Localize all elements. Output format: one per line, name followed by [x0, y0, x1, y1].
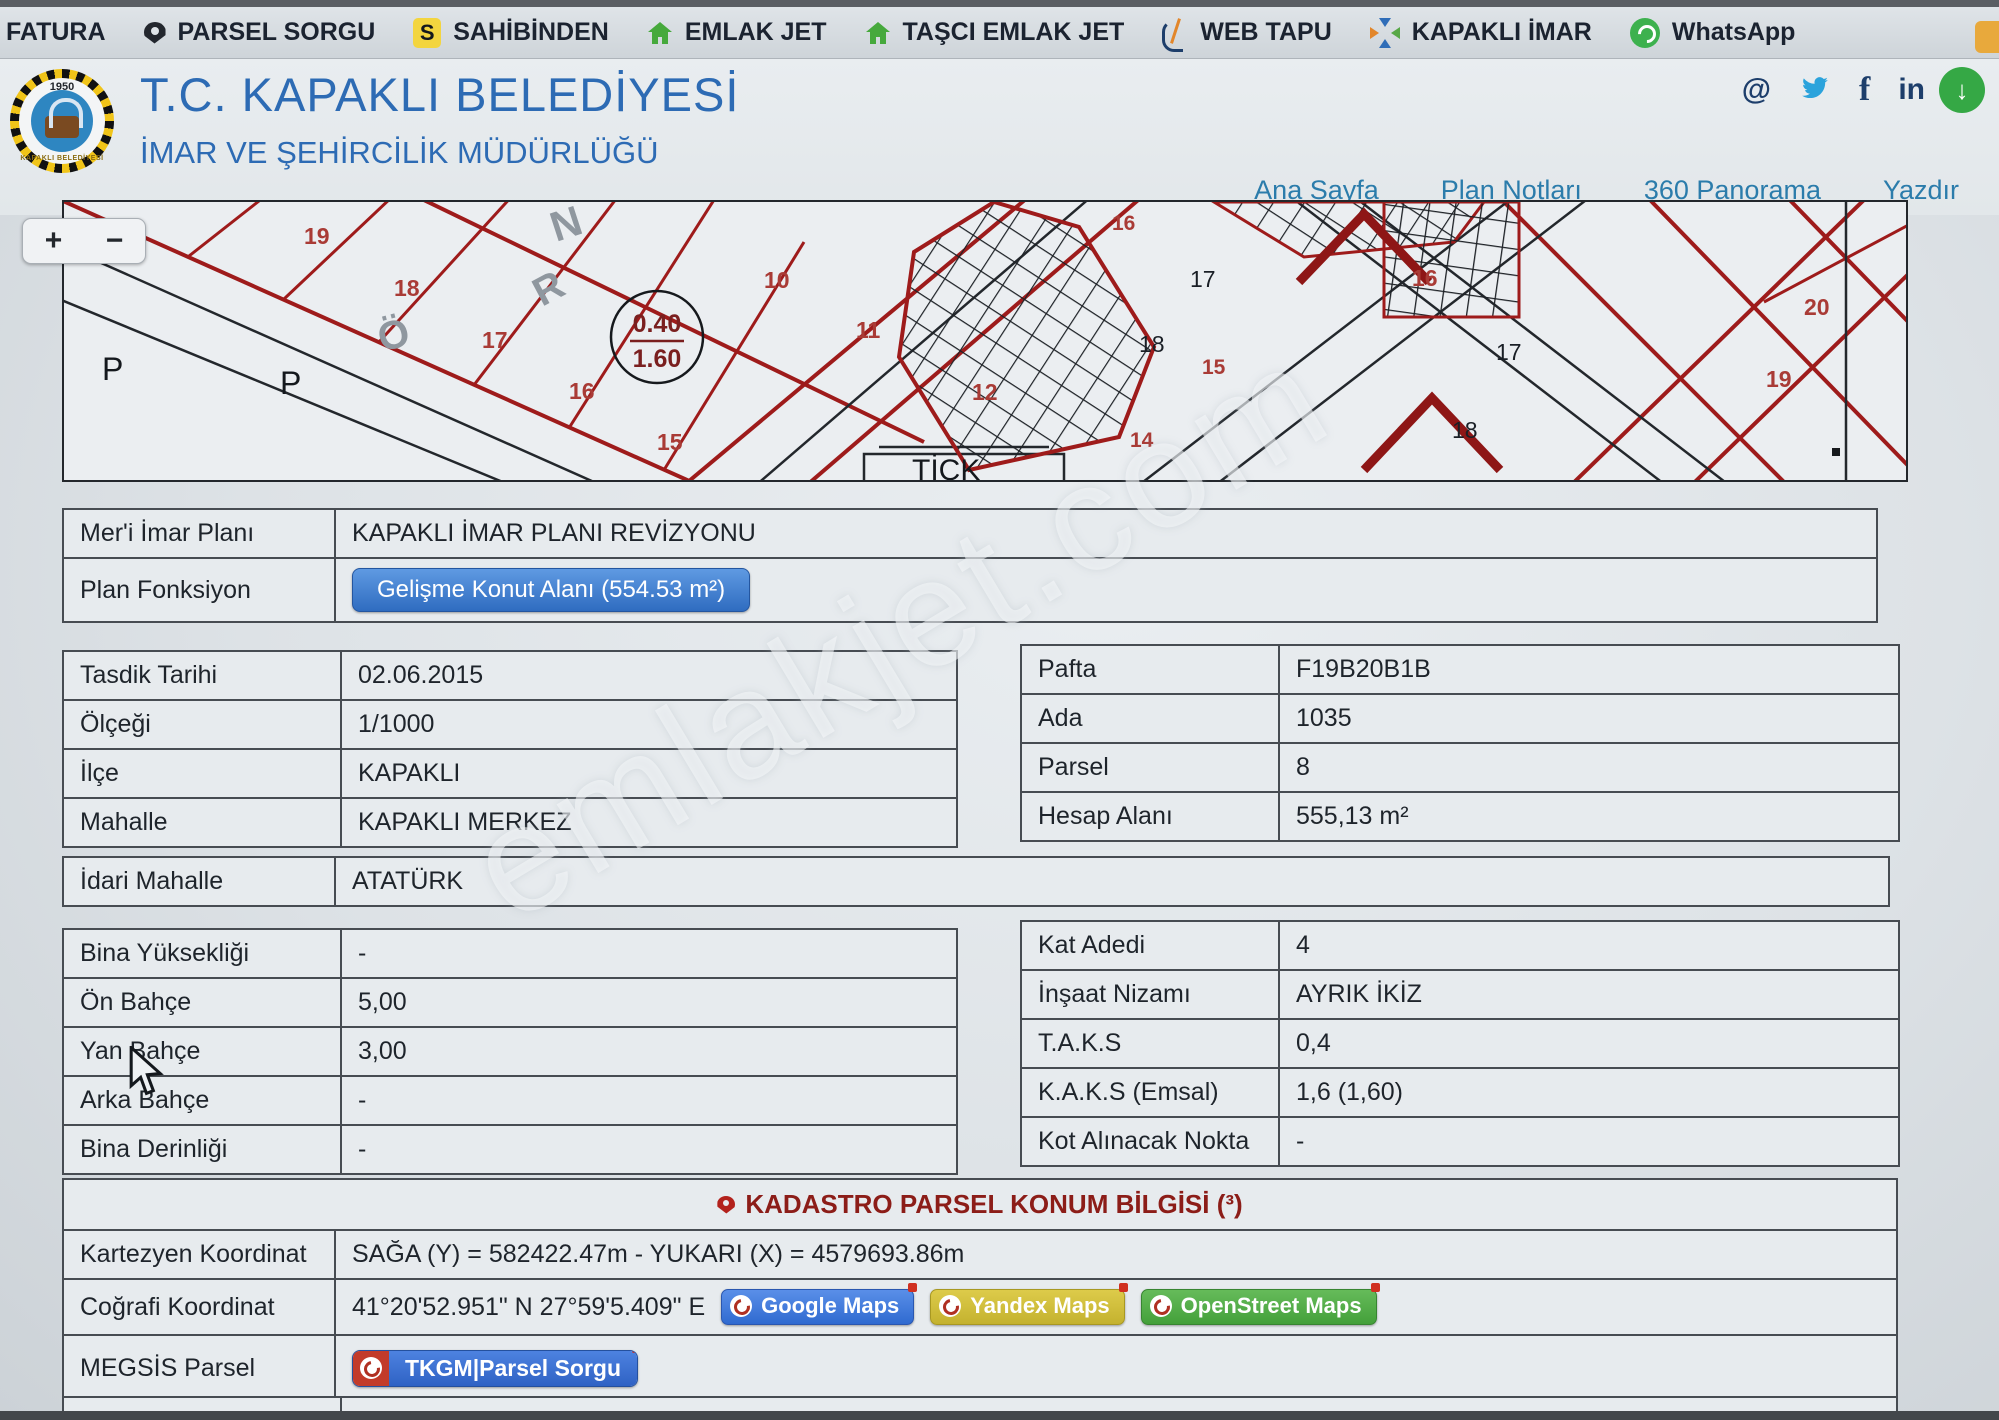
- cadastral-map[interactable]: N 19 18 17 16 15 Ö R P P 0.40 1.60 10 11…: [62, 200, 1908, 482]
- map-parcel-label: 10: [764, 267, 790, 293]
- field-value: AYRIK İKİZ: [1280, 971, 1898, 1018]
- tkgm-icon: [353, 1351, 389, 1386]
- map-ratio-label: 0.40: [633, 310, 682, 338]
- logo-town-text: KAPAKLI BELEDİYESİ: [19, 155, 105, 162]
- field-label: İlçe: [64, 750, 342, 797]
- plan-table: Mer'i İmar Planı KAPAKLI İMAR PLANI REVİ…: [62, 508, 1878, 623]
- setback-table: Bina Yüksekliği - Ön Bahçe 5,00 Yan Bahç…: [62, 928, 958, 1175]
- field-value: 3,00: [342, 1028, 956, 1075]
- field-value: 8: [1280, 744, 1898, 791]
- maps-button-icon: [939, 1295, 961, 1317]
- kadastro-header-row: KADASTRO PARSEL KONUM BİLGİSİ (³): [64, 1180, 1896, 1231]
- field-value: TKGM|Parsel Sorgu: [336, 1336, 1896, 1400]
- tkgm-parsel-sorgu-button[interactable]: TKGM|Parsel Sorgu: [352, 1350, 638, 1387]
- location-pin-icon: [717, 1196, 735, 1214]
- field-label: Hesap Alanı: [1022, 793, 1280, 840]
- field-label: Ada: [1022, 695, 1280, 742]
- table-row: Arka Bahçe -: [64, 1077, 956, 1126]
- button-label: TKGM|Parsel Sorgu: [389, 1351, 637, 1386]
- table-row: Coğrafi Koordinat 41°20'52.951" N 27°59'…: [64, 1280, 1896, 1336]
- table-row: Mer'i İmar Planı KAPAKLI İMAR PLANI REVİ…: [64, 510, 1876, 559]
- field-label: Kot Alınacak Nokta: [1022, 1118, 1280, 1165]
- field-label: Kartezyen Koordinat: [64, 1231, 336, 1278]
- twitter-icon[interactable]: [1799, 74, 1831, 107]
- field-value: 4: [1280, 922, 1898, 969]
- badge-dot: [632, 1350, 638, 1353]
- map-parcel-label: 19: [1766, 366, 1792, 392]
- field-value: 555,13 m²: [1280, 793, 1898, 840]
- table-row: Mahalle KAPAKLI MERKEZ: [64, 799, 956, 846]
- field-label: Mahalle: [64, 799, 342, 846]
- maps-button-icon: [730, 1295, 752, 1317]
- sahibinden-icon: S: [413, 18, 441, 48]
- field-label: Pafta: [1022, 646, 1280, 693]
- field-label: Bina Derinliği: [64, 1126, 342, 1173]
- openstreet-maps-button[interactable]: OpenStreet Maps: [1141, 1289, 1377, 1325]
- field-label: Mer'i İmar Planı: [64, 510, 336, 557]
- parcel-id-table: Pafta F19B20B1B Ada 1035 Parsel 8 Hesap …: [1020, 644, 1900, 842]
- google-maps-button[interactable]: Google Maps: [721, 1289, 914, 1325]
- plan-fonksiyon-button[interactable]: Gelişme Konut Alanı (554.53 m²): [352, 568, 750, 612]
- bookmark-sahibinden[interactable]: S SAHİBİNDEN: [413, 18, 609, 48]
- field-label: Ön Bahçe: [64, 979, 342, 1026]
- kadastro-table: KADASTRO PARSEL KONUM BİLGİSİ (³) Kartez…: [62, 1178, 1898, 1402]
- map-letter-label: Ö: [373, 309, 415, 361]
- field-value: SAĞA (Y) = 582422.47m - YUKARI (X) = 457…: [336, 1231, 1896, 1278]
- map-tick-label: TİCK: [912, 454, 980, 482]
- social-links: @ f in: [1742, 73, 1925, 107]
- bookmark-kapakli-imar[interactable]: KAPAKLI İMAR: [1370, 18, 1592, 48]
- screen-top-edge: [0, 0, 1999, 7]
- field-label: Yan Bahçe: [64, 1028, 342, 1075]
- linkedin-icon[interactable]: in: [1898, 75, 1925, 105]
- bookmark-label: WEB TAPU: [1200, 18, 1331, 47]
- field-value: 02.06.2015: [342, 652, 956, 699]
- section-title: KADASTRO PARSEL KONUM BİLGİSİ (³): [745, 1189, 1242, 1220]
- field-label: İnşaat Nizamı: [1022, 971, 1280, 1018]
- bookmark-label: TAŞCI EMLAK JET: [903, 18, 1125, 47]
- field-value: -: [342, 930, 956, 977]
- button-label: Yandex Maps: [970, 1293, 1109, 1319]
- table-row: Yan Bahçe 3,00: [64, 1028, 956, 1077]
- field-label: Arka Bahçe: [64, 1077, 342, 1124]
- kadastro-title-cell: KADASTRO PARSEL KONUM BİLGİSİ (³): [64, 1180, 1896, 1229]
- map-parcel-label: 19: [304, 223, 330, 249]
- house-icon: [647, 20, 673, 46]
- bookmark-parsel-sorgu[interactable]: PARSEL SORGU: [144, 18, 376, 47]
- map-parcel-label: 18: [1452, 417, 1478, 443]
- map-parcel-label: 18: [394, 275, 420, 301]
- yandex-maps-button[interactable]: Yandex Maps: [930, 1289, 1124, 1325]
- table-row: Ön Bahçe 5,00: [64, 979, 956, 1028]
- bookmark-label: FATURA: [6, 18, 106, 47]
- table-row: İlçe KAPAKLI: [64, 750, 956, 799]
- maps-button-icon: [1150, 1295, 1172, 1317]
- field-value: KAPAKLI İMAR PLANI REVİZYONU: [336, 510, 1876, 557]
- table-row: Tasdik Tarihi 02.06.2015: [64, 652, 956, 701]
- facebook-icon[interactable]: f: [1859, 73, 1870, 107]
- bookmark-partial-icon[interactable]: [1975, 21, 1999, 53]
- field-label: Plan Fonksiyon: [64, 559, 336, 621]
- field-label: Kat Adedi: [1022, 922, 1280, 969]
- field-value: 5,00: [342, 979, 956, 1026]
- bookmark-fatura[interactable]: FATURA: [6, 18, 106, 47]
- map-parcel-label: 15: [657, 429, 683, 455]
- bookmark-tasci-emlak-jet[interactable]: TAŞCI EMLAK JET: [865, 18, 1125, 47]
- map-parcel-label: 17: [1190, 266, 1216, 292]
- field-label: K.A.K.S (Emsal): [1022, 1069, 1280, 1116]
- button-label: OpenStreet Maps: [1181, 1293, 1362, 1319]
- badge-dot: [908, 1283, 917, 1292]
- map-north-label: N: [544, 202, 587, 251]
- municipality-logo: 1950 KAPAKLI BELEDİYESİ: [10, 69, 114, 173]
- field-value: KAPAKLI MERKEZ: [342, 799, 956, 846]
- map-parcel-label: 17: [1496, 339, 1522, 365]
- field-value: 0,4: [1280, 1020, 1898, 1067]
- table-row: Ada 1035: [1022, 695, 1898, 744]
- map-parcel-label: 18: [1139, 331, 1165, 357]
- map-parcel-label: 16: [1112, 212, 1135, 235]
- page: FATURA PARSEL SORGU S SAHİBİNDEN EMLAK J…: [0, 0, 1999, 1420]
- field-label: Parsel: [1022, 744, 1280, 791]
- house-icon: [865, 20, 891, 46]
- table-row: K.A.K.S (Emsal) 1,6 (1,60): [1022, 1069, 1898, 1118]
- field-label: T.A.K.S: [1022, 1020, 1280, 1067]
- plan-details-table: Tasdik Tarihi 02.06.2015 Ölçeği 1/1000 İ…: [62, 650, 958, 848]
- table-row: Kartezyen Koordinat SAĞA (Y) = 582422.47…: [64, 1231, 1896, 1280]
- table-row: İnşaat Nizamı AYRIK İKİZ: [1022, 971, 1898, 1020]
- field-value: ATATÜRK: [336, 858, 1888, 905]
- map-parcel-label: 12: [972, 379, 998, 405]
- field-value: F19B20B1B: [1280, 646, 1898, 693]
- field-value: Gelişme Konut Alanı (554.53 m²): [336, 559, 1876, 621]
- table-row: MEGSİS Parsel TKGM|Parsel Sorgu: [64, 1336, 1896, 1400]
- map-parcel-label: 16: [569, 378, 595, 404]
- field-value: -: [342, 1126, 956, 1173]
- site-header: 1950 KAPAKLI BELEDİYESİ T.C. KAPAKLI BEL…: [0, 59, 1999, 215]
- table-row: Ölçeği 1/1000: [64, 701, 956, 750]
- page-title: T.C. KAPAKLI BELEDİYESİ: [140, 67, 739, 122]
- zoom-out-button[interactable]: −: [84, 220, 145, 262]
- table-row: Pafta F19B20B1B: [1022, 646, 1898, 695]
- field-value: KAPAKLI: [342, 750, 956, 797]
- badge-dot: [1371, 1283, 1380, 1292]
- field-value: 1/1000: [342, 701, 956, 748]
- map-parcel-label: 20: [1804, 294, 1830, 320]
- field-label: Tasdik Tarihi: [64, 652, 342, 699]
- map-parcel-label: 11: [856, 317, 881, 343]
- map-pin-icon: [144, 22, 166, 44]
- bookmark-label: PARSEL SORGU: [178, 18, 376, 47]
- coordinates-text: 41°20'52.951" N 27°59'5.409" E: [352, 1293, 705, 1322]
- scroll-download-button[interactable]: ↓: [1939, 67, 1985, 113]
- bookmark-label: EMLAK JET: [685, 18, 827, 47]
- map-street-label: P: [280, 365, 301, 401]
- map-parcel-label: 17: [482, 327, 508, 353]
- table-row: Kot Alınacak Nokta -: [1022, 1118, 1898, 1165]
- page-subtitle: İMAR VE ŞEHİRCİLİK MÜDÜRLÜĞÜ: [140, 135, 658, 171]
- field-label: MEGSİS Parsel: [64, 1336, 336, 1400]
- table-row: Parsel 8: [1022, 744, 1898, 793]
- table-row: Bina Derinliği -: [64, 1126, 956, 1173]
- field-value: 1,6 (1,60): [1280, 1069, 1898, 1116]
- converging-arrows-icon: [1370, 18, 1400, 48]
- map-ratio-label: 1.60: [633, 345, 682, 373]
- browser-bookmarks-bar: FATURA PARSEL SORGU S SAHİBİNDEN EMLAK J…: [0, 7, 1999, 59]
- bookmark-whatsapp[interactable]: WhatsApp: [1630, 18, 1796, 48]
- field-value: -: [1280, 1118, 1898, 1165]
- field-label: İdari Mahalle: [64, 858, 336, 905]
- table-row: İdari Mahalle ATATÜRK: [64, 858, 1888, 905]
- table-row: Bina Yüksekliği -: [64, 930, 956, 979]
- field-value: 41°20'52.951" N 27°59'5.409" E Google Ma…: [336, 1280, 1896, 1334]
- button-label: Google Maps: [761, 1293, 899, 1319]
- bookmark-label: KAPAKLI İMAR: [1412, 18, 1592, 47]
- instagram-icon[interactable]: @: [1742, 75, 1771, 105]
- table-row: Hesap Alanı 555,13 m²: [1022, 793, 1898, 840]
- bookmark-label: WhatsApp: [1672, 18, 1796, 47]
- field-label: Bina Yüksekliği: [64, 930, 342, 977]
- bookmark-emlak-jet[interactable]: EMLAK JET: [647, 18, 827, 47]
- bookmark-web-tapu[interactable]: WEB TAPU: [1162, 18, 1331, 48]
- field-value: -: [342, 1077, 956, 1124]
- webtapu-icon: [1162, 18, 1188, 48]
- zoom-in-button[interactable]: +: [23, 220, 84, 262]
- screen-bottom-edge: [0, 1411, 1999, 1420]
- table-row: T.A.K.S 0,4: [1022, 1020, 1898, 1069]
- bookmark-label: SAHİBİNDEN: [453, 18, 609, 47]
- table-row: Plan Fonksiyon Gelişme Konut Alanı (554.…: [64, 559, 1876, 621]
- field-label: Ölçeği: [64, 701, 342, 748]
- whatsapp-icon: [1630, 18, 1660, 48]
- field-value: 1035: [1280, 695, 1898, 742]
- map-parcel-label: 16: [1412, 265, 1438, 291]
- map-parcel-label: 14: [1130, 429, 1154, 452]
- table-row: Kat Adedi 4: [1022, 922, 1898, 971]
- field-label: Coğrafi Koordinat: [64, 1280, 336, 1334]
- idari-mahalle-table: İdari Mahalle ATATÜRK: [62, 856, 1890, 907]
- zoning-table: Kat Adedi 4 İnşaat Nizamı AYRIK İKİZ T.A…: [1020, 920, 1900, 1167]
- map-zoom-control: + −: [22, 218, 146, 264]
- map-parcel-label: 15: [1202, 356, 1226, 379]
- map-street-label: P: [102, 351, 123, 387]
- logo-well-emblem: [31, 90, 93, 152]
- badge-dot: [1119, 1283, 1128, 1292]
